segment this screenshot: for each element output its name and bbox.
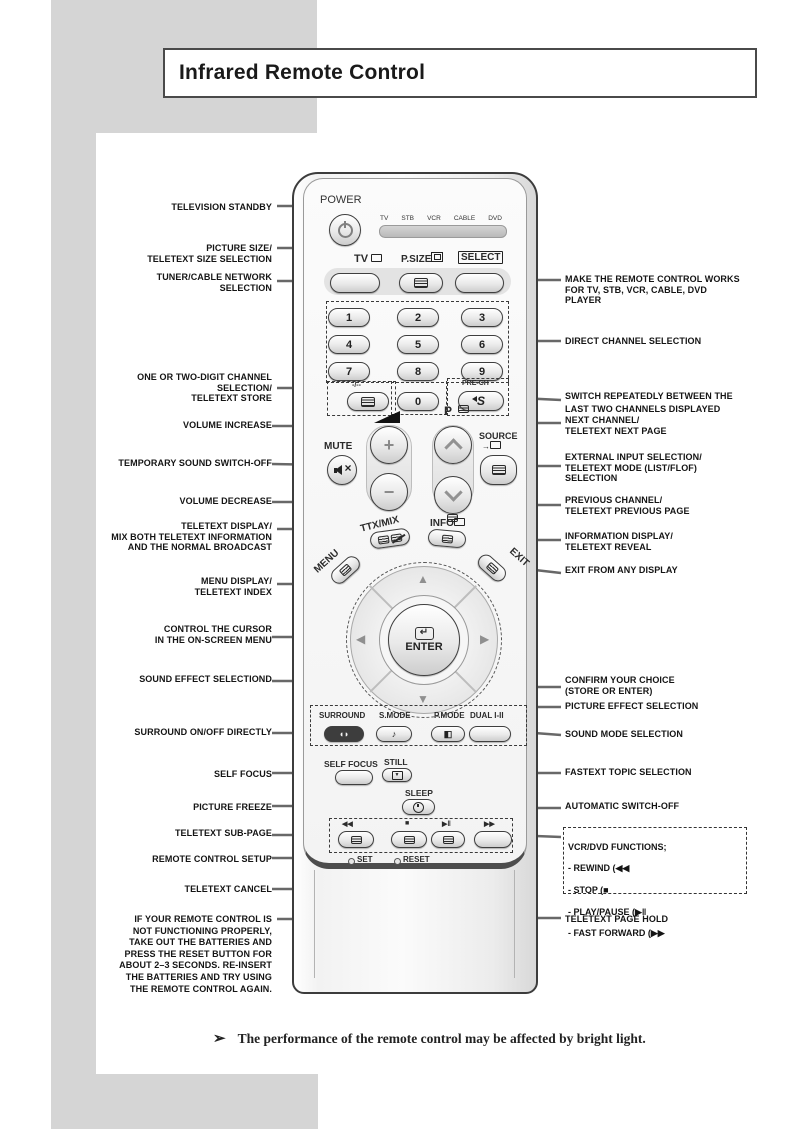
surround-button: ◖◗	[324, 726, 364, 742]
callout-tuner-cable: TUNER/CABLE NETWORK SELECTION	[60, 272, 272, 293]
remote-lower-edge-left	[314, 870, 315, 978]
power-label: POWER	[320, 194, 362, 206]
source-button	[480, 455, 517, 485]
dpad-left-icon: ◀	[356, 632, 365, 646]
info-button	[427, 528, 466, 548]
callout-auto-switch-off: AUTOMATIC SWITCH-OFF	[565, 801, 757, 812]
digit-button-5: 5	[397, 335, 439, 354]
picture-size-icon	[431, 252, 443, 262]
callout-picture-freeze: PICTURE FREEZE	[60, 802, 272, 813]
callout-sound-mode: SOUND MODE SELECTION	[565, 729, 757, 740]
chevron-down-icon	[444, 483, 462, 501]
callout-sound-effect: SOUND EFFECT SELECTIOND	[60, 674, 272, 685]
callout-previous-channel: PREVIOUS CHANNEL/ TELETEXT PREVIOUS PAGE	[565, 495, 757, 516]
note-text: The performance of the remote control ma…	[238, 1031, 646, 1047]
callout-confirm-choice: CONFIRM YOUR CHOICE (STORE OR ENTER)	[565, 675, 757, 696]
callout-surround-onoff: SURROUND ON/OFF DIRECTLY	[60, 727, 272, 738]
smode-button: ♪	[376, 726, 412, 742]
digit-button-1: 1	[328, 308, 370, 327]
one-two-digit-button	[347, 392, 389, 411]
digit-button-7: 7	[328, 362, 370, 381]
selffocus-label: SELF FOCUS	[324, 759, 378, 769]
footer-note: ➢ The performance of the remote control …	[213, 1029, 646, 1048]
vcr-fast-forward-button	[474, 831, 512, 848]
digit-button-4: 4	[328, 335, 370, 354]
speaker-cone	[335, 465, 342, 475]
dpad-right-icon: ▶	[480, 632, 489, 646]
callout-self-focus: SELF FOCUS	[60, 769, 272, 780]
stop-symbol: ■	[405, 820, 409, 827]
callout-teletext-subpage: TELETEXT SUB-PAGE	[60, 828, 272, 839]
power-icon	[338, 223, 353, 238]
callout-teletext-page-hold: TELETEXT PAGE HOLD	[565, 914, 757, 925]
channel-down-button	[434, 476, 472, 514]
callout-sound-switch-off: TEMPORARY SOUND SWITCH-OFF	[60, 458, 272, 469]
still-button: ▼	[382, 768, 412, 782]
picture-mode-icon: ◧	[444, 729, 453, 740]
mute-button: ×	[327, 455, 357, 485]
dpad-down-icon: ▼	[417, 692, 429, 706]
surround-label: SURROUND	[319, 711, 365, 720]
volume-ramp-icon	[374, 411, 400, 423]
callout-select-function: MAKE THE REMOTE CONTROL WORKS FOR TV, ST…	[565, 274, 757, 306]
mute-speaker-icon: ×	[334, 464, 351, 477]
callout-vcr-dvd-functions: VCR/DVD FUNCTIONS; - REWIND (◀◀ - STOP (…	[563, 827, 747, 894]
pmode-button: ◧	[431, 726, 465, 742]
vcr-box-line: - REWIND (◀◀	[568, 863, 746, 874]
still-icon: ▼	[392, 771, 403, 780]
callout-prech-function: SWITCH REPEATEDLY BETWEEN THE LAST TWO C…	[565, 390, 757, 416]
psize-button	[399, 273, 443, 293]
teletext-subpage-icon	[351, 836, 362, 844]
source-button-icon	[492, 465, 506, 475]
callout-direct-channel: DIRECT CHANNEL SELECTION	[565, 336, 757, 347]
device-label-stb: STB	[401, 215, 414, 222]
volume-up-button: +	[370, 426, 408, 464]
callout-reset-instructions: IF YOUR REMOTE CONTROL IS NOT FUNCTIONIN…	[60, 914, 272, 995]
note-arrow-icon: ➢	[213, 1029, 226, 1048]
device-indicator-strip	[379, 225, 507, 238]
source-box-icon	[490, 441, 501, 449]
callout-exit-display: EXIT FROM ANY DISPLAY	[565, 565, 757, 576]
dual-label: DUAL I-II	[470, 711, 504, 720]
prech-swap-icon: S	[477, 394, 485, 408]
fast-forward-symbol: ▶▶	[484, 820, 495, 828]
callout-next-channel: NEXT CHANNEL/ TELETEXT NEXT PAGE	[565, 415, 757, 436]
page-title: Infrared Remote Control	[179, 61, 425, 85]
sleep-timer-icon	[413, 802, 424, 813]
tv-button-label: TV	[354, 253, 382, 265]
set-indicator-dot	[348, 858, 355, 865]
p-channel-label: P	[444, 404, 452, 418]
teletext-size-icon	[414, 278, 428, 288]
device-label-vcr: VCR	[427, 215, 441, 222]
dpad-up-icon: ▲	[417, 572, 429, 586]
callout-volume-increase: VOLUME INCREASE	[60, 420, 272, 431]
teletext-index-icon	[339, 563, 353, 576]
selffocus-button	[335, 770, 373, 785]
select-button	[455, 273, 504, 293]
still-label: STILL	[384, 757, 408, 767]
digit-button-2: 2	[397, 308, 439, 327]
device-label-cable: CABLE	[454, 215, 475, 222]
select-button-label: SELECT	[458, 251, 503, 264]
mute-label: MUTE	[324, 441, 352, 452]
volume-down-button: −	[370, 473, 408, 511]
callout-info-display: INFORMATION DISPLAY/ TELETEXT REVEAL	[565, 531, 757, 552]
teletext-next-page-icon	[458, 405, 469, 413]
mix-icon	[390, 533, 402, 542]
teletext-store-icon	[361, 397, 375, 407]
digit-button-0: 0	[397, 392, 439, 411]
sleep-button	[402, 799, 435, 815]
exit-icon	[485, 561, 499, 574]
callout-picture-effect: PICTURE EFFECT SELECTION	[565, 701, 757, 712]
vcr-play-pause-button	[431, 831, 465, 848]
teletext-hold-icon	[443, 836, 454, 844]
vcr-stop-button	[391, 831, 427, 848]
one-two-digit-label: -/--	[352, 382, 361, 389]
callout-picture-size: PICTURE SIZE/ TELETEXT SIZE SELECTION	[60, 243, 272, 264]
callout-cursor-control: CONTROL THE CURSOR IN THE ON-SCREEN MENU	[60, 624, 272, 645]
remote-body: POWER TV STB VCR CABLE DVD TV P.SIZE SEL…	[292, 172, 538, 994]
psize-label-text: P.SIZE	[401, 254, 431, 265]
callout-remote-setup: REMOTE CONTROL SETUP	[60, 854, 272, 865]
chevron-up-icon	[444, 438, 462, 456]
mute-x-mark: ×	[344, 461, 351, 475]
digit-button-3: 3	[461, 308, 503, 327]
tv-screen-icon	[371, 254, 382, 262]
set-label: SET	[357, 855, 373, 864]
rewind-symbol: ◀◀	[342, 820, 353, 828]
play-pause-symbol: ▶‖	[442, 820, 451, 828]
device-label-dvd: DVD	[488, 215, 502, 222]
info-label: INFO	[430, 518, 465, 529]
device-mode-labels: TV STB VCR CABLE DVD	[380, 215, 502, 222]
digit-button-6: 6	[461, 335, 503, 354]
tv-button	[330, 273, 380, 293]
teletext-reveal-icon	[441, 534, 453, 543]
callout-teletext-display: TELETEXT DISPLAY/ MIX BOTH TELETEXT INFO…	[60, 521, 272, 553]
callout-teletext-cancel: TELETEXT CANCEL	[60, 884, 272, 895]
device-label-tv: TV	[380, 215, 388, 222]
decor-gray-bottom-block	[51, 1074, 318, 1129]
callout-menu-display: MENU DISPLAY/ TELETEXT INDEX	[60, 576, 272, 597]
info-label-text: INFO	[430, 518, 454, 529]
prech-label: PRE-CH	[462, 380, 489, 387]
vcr-rewind-button	[338, 831, 374, 848]
callout-television-standby: TELEVISION STANDBY	[60, 202, 272, 213]
sound-mode-icon: ♪	[392, 729, 397, 739]
source-label: SOURCE	[479, 431, 518, 441]
teletext-cancel-icon	[404, 836, 415, 844]
sleep-label: SLEEP	[405, 788, 433, 798]
vcr-box-line: VCR/DVD FUNCTIONS;	[568, 842, 746, 853]
source-input-icon: →	[482, 441, 501, 451]
psize-button-label: P.SIZE	[401, 252, 443, 265]
vcr-box-line: - STOP (■	[568, 885, 746, 896]
reset-label: RESET	[403, 855, 430, 864]
enter-label: ENTER	[405, 641, 442, 653]
manual-page: Infrared Remote Control	[0, 0, 802, 1129]
power-button	[329, 214, 361, 246]
channel-up-button	[434, 426, 472, 464]
tv-label-text: TV	[354, 253, 368, 265]
callout-one-two-digit: ONE OR TWO-DIGIT CHANNEL SELECTION/ TELE…	[60, 372, 272, 404]
remote-lower-edge-right	[514, 870, 515, 978]
digit-button-8: 8	[397, 362, 439, 381]
enter-button: ↵ ENTER	[388, 604, 460, 676]
title-box: Infrared Remote Control	[163, 48, 757, 98]
enter-return-icon: ↵	[415, 627, 434, 640]
callout-fastext-topic: FASTEXT TOPIC SELECTION	[565, 767, 757, 778]
dual-button	[469, 726, 511, 742]
surround-icon: ◖◗	[339, 729, 350, 739]
smode-label: S.MODE	[379, 711, 411, 720]
pmode-label: P.MODE	[434, 711, 465, 720]
callout-volume-decrease: VOLUME DECREASE	[60, 496, 272, 507]
vcr-box-line: - FAST FORWARD (▶▶	[568, 928, 746, 939]
callout-external-input: EXTERNAL INPUT SELECTION/ TELETEXT MODE …	[565, 452, 757, 484]
info-corner-icon	[454, 518, 465, 526]
source-arrow: →	[482, 442, 490, 451]
teletext-icon	[378, 535, 390, 544]
reset-indicator-dot	[394, 858, 401, 865]
